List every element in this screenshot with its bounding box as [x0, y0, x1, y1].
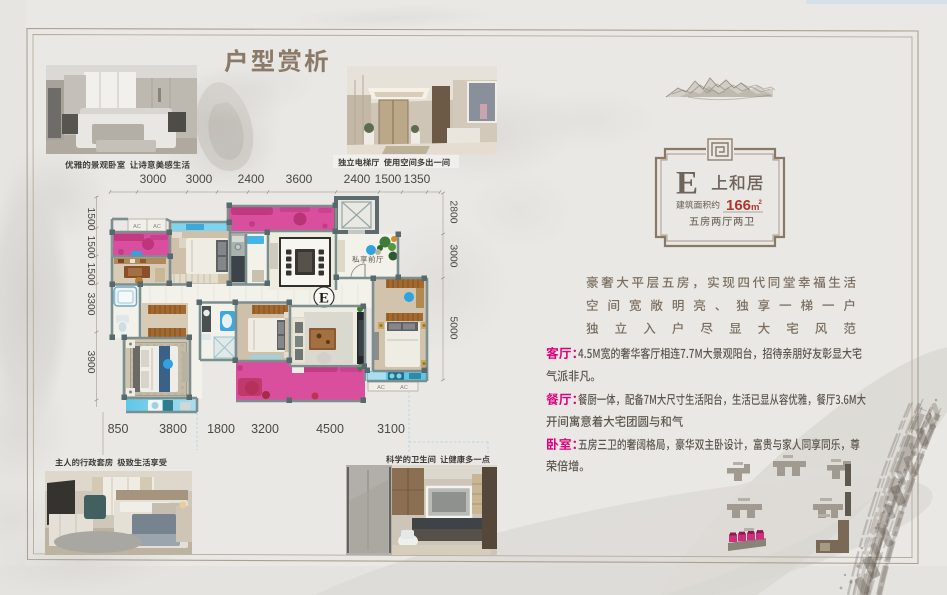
svg-text:E: E	[676, 166, 698, 202]
svg-text:E: E	[319, 291, 329, 307]
svg-text:3000: 3000	[186, 172, 213, 186]
svg-text:AC: AC	[133, 224, 141, 230]
svg-text:1500: 1500	[85, 263, 96, 286]
svg-text:AC: AC	[400, 385, 408, 391]
svg-text:850: 850	[108, 422, 129, 436]
svg-text:1800: 1800	[207, 422, 235, 436]
svg-text:3100: 3100	[377, 422, 405, 436]
svg-text:1500: 1500	[85, 208, 96, 231]
svg-text:3000: 3000	[448, 245, 459, 268]
svg-text:5000: 5000	[448, 317, 459, 340]
svg-text:AC: AC	[377, 385, 385, 391]
svg-text:1500: 1500	[85, 236, 96, 259]
svg-text:3600: 3600	[286, 172, 313, 186]
svg-text:1500: 1500	[375, 172, 402, 186]
svg-text:AC: AC	[153, 224, 161, 230]
svg-text:3300: 3300	[85, 293, 96, 316]
svg-text:3900: 3900	[85, 351, 96, 374]
svg-text:2800: 2800	[448, 201, 459, 224]
svg-text:4500: 4500	[316, 422, 344, 436]
svg-text:2400: 2400	[344, 172, 371, 186]
svg-text:166: 166	[726, 197, 751, 214]
svg-text:3200: 3200	[251, 422, 279, 436]
svg-text:3800: 3800	[159, 422, 187, 436]
svg-text:1350: 1350	[404, 172, 431, 186]
svg-text:2400: 2400	[238, 172, 265, 186]
svg-text:3000: 3000	[140, 172, 167, 186]
